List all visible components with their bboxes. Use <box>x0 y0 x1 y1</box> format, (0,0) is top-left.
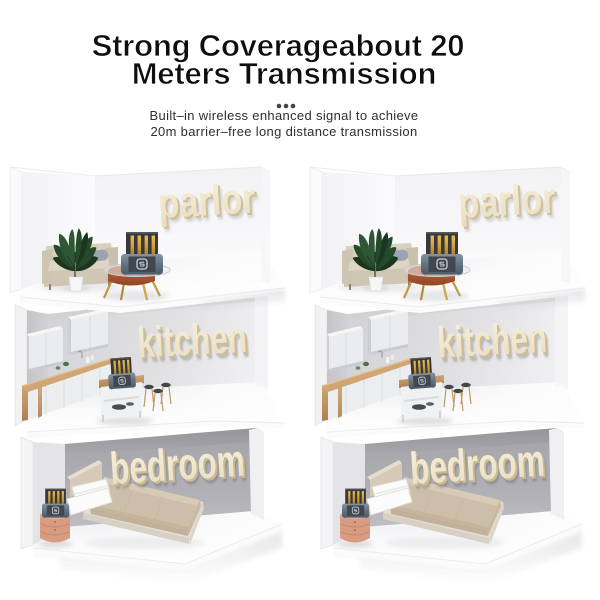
svg-text:kitchen: kitchen <box>136 314 248 368</box>
svg-text:bedroom: bedroom <box>109 436 247 494</box>
svg-text:parlor: parlor <box>157 175 257 228</box>
